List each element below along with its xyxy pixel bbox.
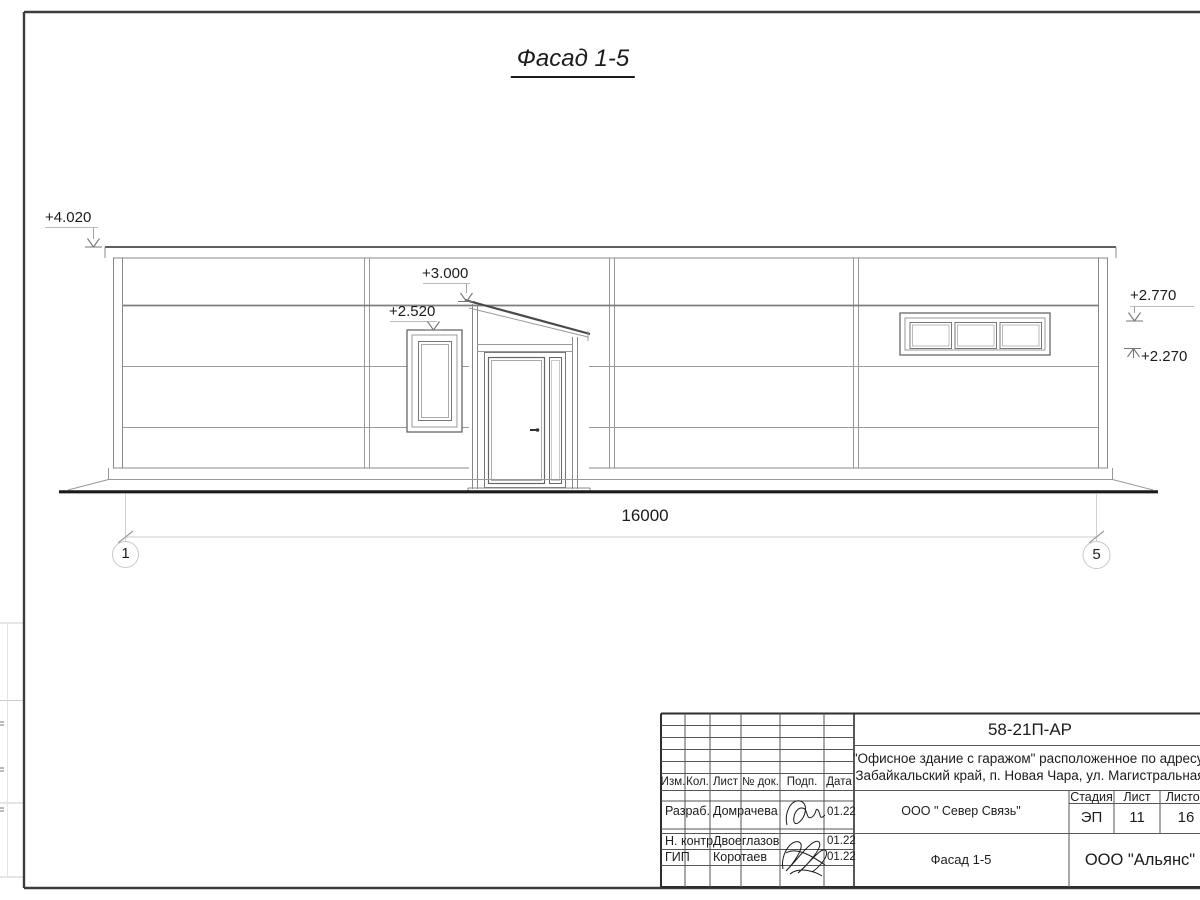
signatures: [782, 801, 826, 876]
tb-sheet-value: 11: [1129, 810, 1145, 827]
tb-col-izm: Изм.: [661, 776, 686, 789]
window-left: [407, 330, 462, 432]
tb-stage-value: ЭП: [1081, 810, 1103, 827]
porch-mask: [469, 307, 589, 489]
dimension-and-axes: [113, 494, 1111, 569]
tb-sheets-label: Листов: [1166, 791, 1200, 805]
tb-name-controller: Двоеглазов: [713, 835, 779, 849]
drawing-title: Фасад 1-5: [511, 46, 635, 78]
tb-project-address-2: Забайкальский край, п. Новая Чара, ул. М…: [855, 769, 1200, 784]
signature-developer: [786, 801, 825, 825]
elevation-roof-leader: [45, 228, 102, 248]
tb-role-controller: Н. контр.: [665, 835, 717, 849]
elevation-left-window-leader: [390, 322, 442, 331]
tb-col-list: Лист: [713, 776, 738, 789]
tb-name-gip: Коротаев: [713, 851, 767, 865]
tb-client: ООО " Север Связь": [901, 805, 1020, 819]
entrance-porch: [465, 300, 590, 492]
elevation-left-window: +2.520: [389, 304, 435, 321]
tb-col-data: Дата: [826, 776, 851, 789]
margin-stamp-fragment: [0, 623, 25, 877]
facade-building: [59, 247, 1158, 492]
tb-name-developer: Домрачева: [713, 805, 778, 819]
tb-role-gip: ГИП: [665, 851, 690, 865]
axis-label-1: 1: [121, 546, 129, 563]
window-right: [900, 313, 1050, 355]
elevation-right-window-bottom: +2.270: [1141, 349, 1187, 366]
elevation-canopy-leader: [423, 284, 475, 302]
tb-col-kol: Кол.: [686, 776, 709, 789]
tb-sheets-value: 16: [1178, 810, 1195, 827]
elevation-right-window-bottom-leader: [1124, 349, 1141, 359]
wall-edges: [113, 258, 1108, 468]
tb-col-doc: № док.: [742, 776, 779, 789]
tb-date-gip: 01.22: [827, 851, 856, 864]
tb-date-developer: 01.22: [827, 806, 856, 819]
tb-col-podp: Подп.: [787, 776, 818, 789]
tb-stage-label: Стадия: [1070, 791, 1113, 805]
parapet: [105, 247, 1116, 258]
tb-doc-number: 58-21П-АР: [988, 721, 1072, 740]
elevation-right-window-top: +2.770: [1130, 288, 1176, 305]
elevation-roof: +4.020: [45, 210, 91, 227]
tb-project-address-1: "Офисное здание с гаражом" расположенное…: [853, 752, 1200, 767]
plinth: [68, 468, 1153, 490]
signature-controller: [782, 841, 826, 876]
elevation-canopy: +3.000: [422, 266, 468, 283]
tb-sheet-name: Фасад 1-5: [931, 853, 992, 867]
drawing-sheet: { "drawing": { "title": "Фасад 1-5" }, "…: [0, 0, 1200, 900]
overall-dimension: 16000: [621, 507, 668, 526]
tb-company: ООО "Альянс": [1085, 851, 1195, 869]
tb-role-developer: Разраб.: [665, 805, 710, 819]
elevation-right-window-top-leader: [1126, 307, 1194, 322]
axis-label-5: 5: [1092, 547, 1100, 564]
tb-date-controller: 01.22: [827, 835, 856, 848]
tb-sheet-label: Лист: [1123, 791, 1150, 805]
